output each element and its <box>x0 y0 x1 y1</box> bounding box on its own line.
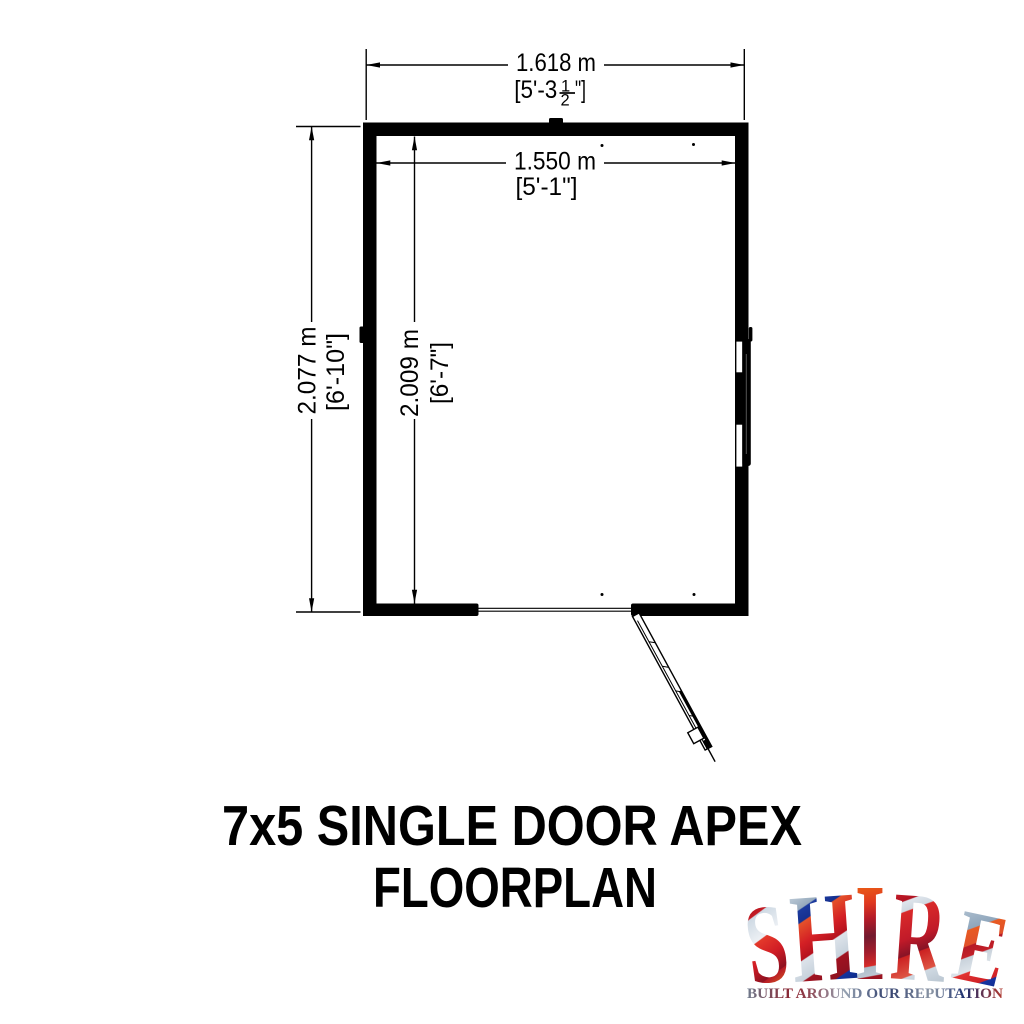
svg-text:2.009 m: 2.009 m <box>396 329 424 417</box>
svg-text:[5'-1"]: [5'-1"] <box>516 173 578 201</box>
svg-text:BUILT AROUND OUR REPUTATION: BUILT AROUND OUR REPUTATION <box>747 986 1003 1002</box>
svg-text:[6'-7"]: [6'-7"] <box>426 342 454 404</box>
svg-text:"]: "] <box>575 76 586 104</box>
svg-text:2: 2 <box>561 92 570 110</box>
svg-text:[5'-3: [5'-3 <box>514 76 557 104</box>
svg-text:[6'-10"]: [6'-10"] <box>322 333 350 411</box>
svg-text:FLOORPLAN: FLOORPLAN <box>373 856 657 920</box>
svg-text:1.550 m: 1.550 m <box>514 148 596 176</box>
svg-text:2.077 m: 2.077 m <box>294 327 322 415</box>
svg-text:7x5 SINGLE DOOR APEX: 7x5 SINGLE DOOR APEX <box>222 794 802 858</box>
svg-text:1.618 m: 1.618 m <box>516 49 596 77</box>
